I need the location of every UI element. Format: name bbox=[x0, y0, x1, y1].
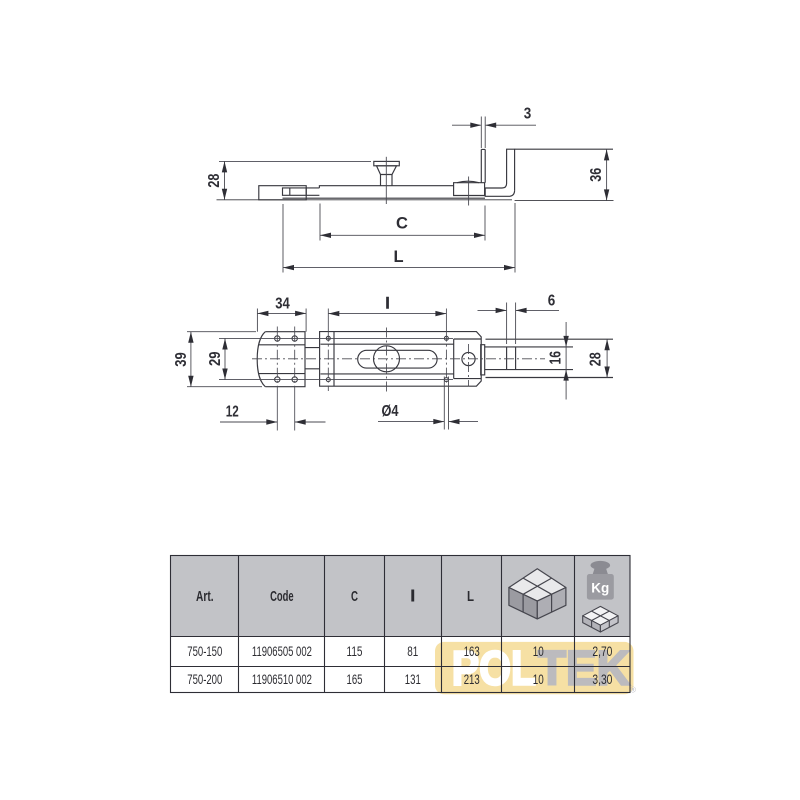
svg-text:29: 29 bbox=[207, 351, 224, 366]
svg-text:131: 131 bbox=[405, 671, 421, 687]
svg-text:750-150: 750-150 bbox=[187, 643, 222, 659]
svg-text:16: 16 bbox=[548, 351, 565, 365]
svg-text:Code: Code bbox=[270, 589, 294, 605]
svg-text:Art.: Art. bbox=[196, 589, 214, 605]
svg-text:2,70: 2,70 bbox=[592, 643, 612, 659]
svg-text:Ø4: Ø4 bbox=[382, 403, 399, 420]
svg-text:11906510 002: 11906510 002 bbox=[252, 671, 312, 687]
svg-text:6: 6 bbox=[548, 293, 556, 310]
svg-text:l: l bbox=[385, 296, 389, 313]
svg-text:34: 34 bbox=[275, 296, 290, 313]
svg-text:28: 28 bbox=[206, 173, 223, 187]
svg-text:39: 39 bbox=[173, 352, 190, 367]
svg-text:115: 115 bbox=[347, 643, 363, 659]
svg-text:C: C bbox=[396, 215, 408, 233]
svg-text:11906505 002: 11906505 002 bbox=[252, 643, 312, 659]
svg-text:81: 81 bbox=[407, 643, 418, 659]
svg-text:l: l bbox=[411, 589, 415, 605]
svg-text:10: 10 bbox=[533, 671, 544, 687]
svg-text:L: L bbox=[467, 589, 474, 605]
svg-text:C: C bbox=[351, 589, 358, 605]
svg-text:Kg: Kg bbox=[591, 580, 609, 595]
svg-text:®: ® bbox=[630, 686, 636, 695]
svg-text:10: 10 bbox=[533, 643, 544, 659]
svg-text:163: 163 bbox=[464, 643, 480, 659]
svg-text:750-200: 750-200 bbox=[187, 671, 222, 687]
svg-text:213: 213 bbox=[464, 671, 480, 687]
svg-text:165: 165 bbox=[347, 671, 363, 687]
svg-text:28: 28 bbox=[588, 352, 605, 366]
svg-text:TEK: TEK bbox=[538, 642, 630, 696]
svg-text:3,30: 3,30 bbox=[592, 671, 612, 687]
svg-text:36: 36 bbox=[588, 167, 605, 181]
svg-text:L: L bbox=[393, 248, 403, 266]
svg-text:12: 12 bbox=[226, 404, 239, 421]
svg-text:3: 3 bbox=[524, 106, 532, 123]
